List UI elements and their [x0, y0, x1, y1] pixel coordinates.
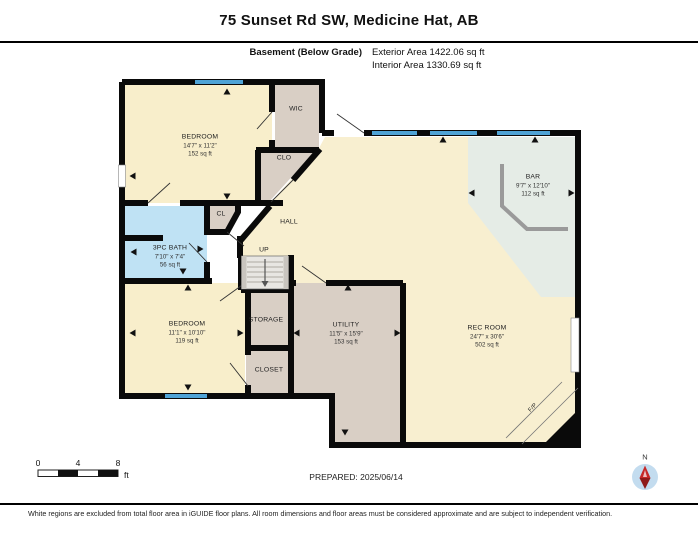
disclaimer-text: White regions are excluded from total fl… [28, 509, 612, 518]
door-exterior-top [337, 114, 364, 133]
opening-right-wall [571, 318, 579, 372]
compass-north-label: N [642, 453, 647, 462]
window-bedroom1 [195, 80, 243, 84]
wic-floor [275, 85, 319, 148]
closet-floor [246, 348, 291, 393]
scale-tick-4: 4 [76, 458, 81, 468]
scale-bar [38, 470, 118, 477]
floor-plan-drawing [0, 0, 698, 540]
floorplan-page: 75 Sunset Rd SW, Medicine Hat, AB Baseme… [0, 0, 698, 540]
room-fills [125, 85, 575, 442]
scale-tick-0: 0 [36, 458, 41, 468]
window-bedroom2 [165, 394, 207, 398]
bedroom1-floor [125, 85, 272, 203]
utility-floor [291, 283, 403, 442]
bedroom2-floor [125, 283, 245, 393]
window-top-2 [430, 131, 477, 135]
scale-unit-label: ft [124, 470, 129, 480]
window-left-wall [119, 165, 126, 187]
scale-tick-8: 8 [116, 458, 121, 468]
window-top-3 [497, 131, 550, 135]
prepared-date: PREPARED: 2025/06/14 [309, 472, 402, 482]
stairs [242, 256, 289, 289]
storage-floor [246, 290, 288, 348]
window-top-1 [372, 131, 417, 135]
footer-divider [0, 503, 698, 505]
bath-floor [125, 206, 207, 281]
compass-icon [632, 464, 658, 490]
